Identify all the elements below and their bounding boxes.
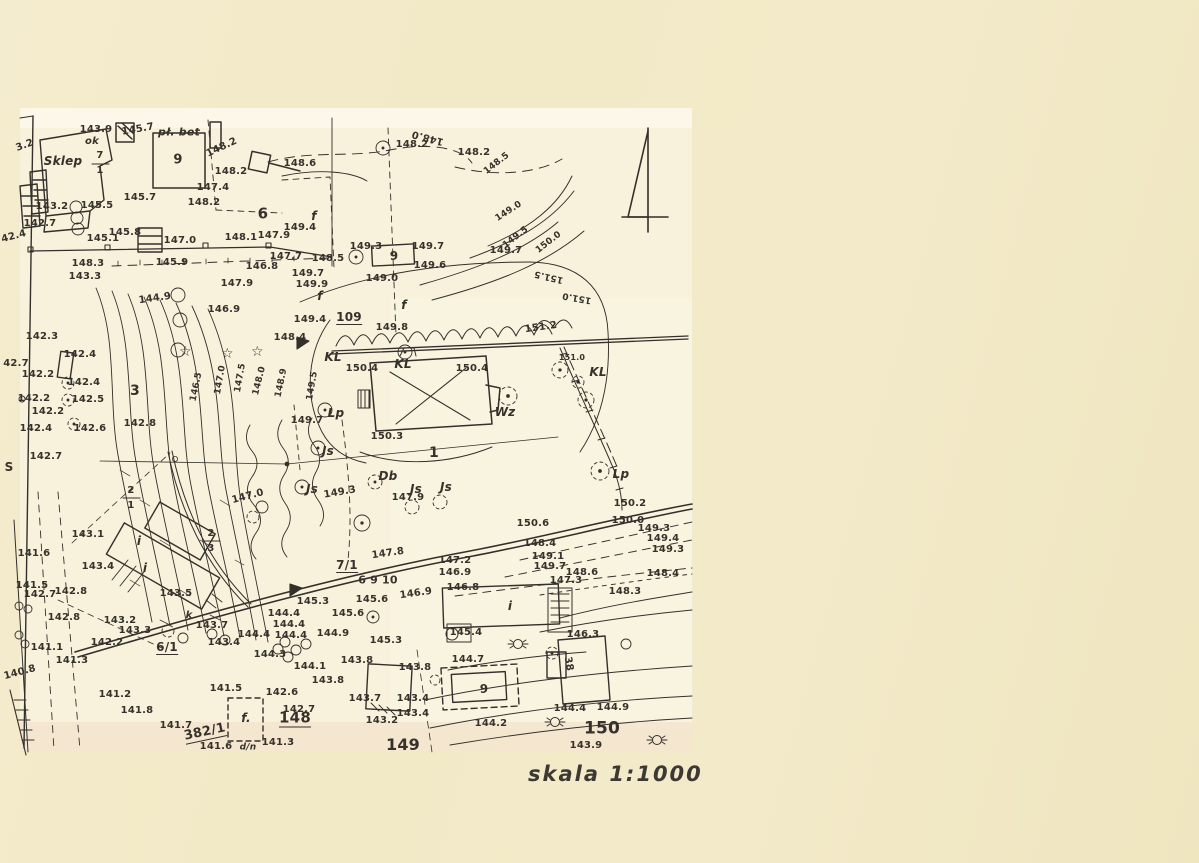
elevation-label: 149.6 — [414, 261, 447, 271]
elevation-label: 142.8 — [55, 587, 88, 597]
elevation-label: 142.8 — [124, 419, 157, 429]
elevation-label: 143.4 — [82, 562, 115, 572]
elevation-label: 149.7 — [412, 242, 445, 252]
elevation-label: 142.2 — [91, 638, 124, 648]
elevation-label: 142.4 — [20, 424, 53, 434]
elevation-label: 145.9 — [156, 258, 189, 268]
elevation-label: 146.9 — [208, 305, 241, 315]
elevation-label: 144.9 — [317, 629, 350, 639]
elevation-label: 149.7 — [490, 246, 523, 256]
abbrev-label: ok — [85, 137, 99, 147]
elevation-label: 144.4 — [238, 630, 271, 640]
elevation-label: 145.3 — [370, 636, 403, 646]
elevation-label: 149.8 — [376, 323, 409, 333]
svg-text:☆: ☆ — [179, 344, 192, 360]
elevation-label: 143.8 — [399, 663, 432, 673]
elevation-label: 142.3 — [26, 332, 59, 342]
elevation-label: 142.6 — [74, 424, 107, 434]
elevation-label: 143.9 — [80, 125, 113, 135]
svg-text:☆: ☆ — [251, 344, 264, 360]
elevation-label: 143.8 — [312, 676, 345, 686]
elevation-label: 143.3 — [119, 626, 152, 636]
elevation-label: 148.2 — [396, 140, 429, 150]
tree-species-label: Js — [410, 483, 422, 495]
parcel-label: 2 — [207, 529, 214, 539]
elevation-label: 149.7 — [534, 562, 567, 572]
svg-text:☆: ☆ — [221, 346, 234, 362]
elevation-label: 142.6 — [266, 688, 299, 698]
tree-species-label: Db — [379, 470, 398, 482]
elevation-label: 144.4 — [275, 631, 308, 641]
elevation-label: 148.3 — [609, 587, 642, 597]
parcel-label: 1 — [127, 501, 134, 511]
elevation-label: 142.4 — [68, 378, 101, 388]
elevation-label: 147.2 — [439, 556, 472, 566]
map-scale-label: skala 1:1000 — [528, 762, 703, 786]
elevation-label: 149.7 — [292, 269, 325, 279]
elevation-label: 143.1 — [72, 530, 105, 540]
elevation-label: 149.3 — [350, 242, 383, 252]
elevation-label: 146.3 — [567, 630, 600, 640]
elevation-label: 145.4 — [450, 628, 483, 638]
elevation-label: 148.4 — [274, 333, 307, 343]
parcel-label: 3 — [207, 544, 214, 554]
elevation-label: 142.7 — [24, 590, 57, 600]
elevation-label: 142.2 — [32, 407, 65, 417]
elevation-label: 141.3 — [262, 738, 295, 748]
elevation-label: 147.3 — [550, 576, 583, 586]
building-label: 38 — [562, 656, 574, 672]
elevation-label: 149.3 — [652, 545, 685, 555]
elevation-label: 141.3 — [56, 656, 89, 666]
tree-species-label: Lp — [328, 407, 345, 419]
elevation-label: 150.4 — [346, 364, 379, 374]
elevation-label: 141.1 — [31, 643, 64, 653]
elevation-label: 142.4 — [64, 350, 97, 360]
building-label: i — [143, 562, 147, 574]
elevation-label: 150.4 — [456, 364, 489, 374]
elevation-label: 146.8 — [246, 262, 279, 272]
building-label: 1 — [429, 446, 439, 460]
north-arrow-icon — [622, 128, 668, 232]
elevation-label: 149.7 — [291, 416, 324, 426]
elevation-label: 147.9 — [221, 279, 254, 289]
elevation-label: 150.2 — [614, 499, 647, 509]
elevation-label: 149.4 — [647, 534, 680, 544]
elevation-label: 148.2 — [458, 148, 491, 158]
tree-species-label: f — [311, 210, 316, 222]
elevation-label: 151.0 — [559, 354, 585, 362]
tree-species-label: f — [401, 299, 406, 311]
elevation-label: 148.5 — [312, 254, 345, 264]
elevation-label: 144.1 — [294, 662, 327, 672]
elevation-label: 145.6 — [356, 595, 389, 605]
elevation-label: 142.2 — [18, 394, 51, 404]
elevation-label: 142.8 — [48, 613, 81, 623]
boundary-letter-label: S — [5, 461, 14, 473]
tree-species-label: f. — [241, 712, 251, 724]
elevation-label: 141.5 — [16, 581, 49, 591]
elevation-label: 149.4 — [294, 315, 327, 325]
parcel-label: 3 — [130, 384, 140, 398]
elevation-label: 149.4 — [284, 223, 317, 233]
elevation-label: 150 — [584, 721, 620, 738]
elevation-label: 149.9 — [296, 280, 329, 290]
elevation-label: 148 — [279, 711, 311, 728]
elevation-label: 148.6 — [284, 159, 317, 169]
building-label: i — [508, 600, 512, 612]
elevation-label: 142.5 — [72, 395, 105, 405]
elevation-label: 143.2 — [36, 202, 69, 212]
parcel-label: 7 — [96, 151, 103, 161]
elevation-label: 141.8 — [121, 706, 154, 716]
tree-species-label: KL — [394, 358, 411, 370]
elevation-label: 146.8 — [447, 583, 480, 593]
elevation-label: 145.8 — [109, 228, 142, 238]
building-1 — [358, 348, 500, 431]
elevation-label: 148.1 — [225, 233, 258, 243]
elevation-label: 148.2 — [188, 198, 221, 208]
elevation-label: 143.4 — [397, 694, 430, 704]
building-name-label: Sklep — [44, 155, 82, 167]
scanned-map-page: { "colors":{"paper":"#f1e8c6","sheet":"#… — [0, 0, 1199, 863]
elevation-label: 144.4 — [273, 620, 306, 630]
elevation-label: 149.0 — [366, 274, 399, 284]
parcel-label: 6 — [258, 207, 269, 222]
elevation-label: 143.9 — [570, 741, 603, 751]
parcel-label: 7/1 — [336, 559, 358, 573]
elevation-label: 144.3 — [254, 650, 287, 660]
elevation-label: 143.7 — [196, 621, 229, 631]
tree-species-label: Wz — [495, 406, 516, 418]
parcel-label: 2 — [127, 486, 134, 496]
elevation-label: 148.4 — [524, 539, 557, 549]
building-label: 9 — [480, 683, 489, 695]
elevation-label: 141.6 — [200, 742, 233, 752]
tree-species-label: f — [317, 290, 322, 302]
elevation-label: 150.3 — [371, 432, 404, 442]
elevation-label: 147.0 — [164, 236, 197, 246]
elevation-label: 148.4 — [647, 569, 680, 579]
elevation-label: 42.7 — [3, 359, 28, 369]
elevation-label: 148.3 — [72, 259, 105, 269]
elevation-label: 143.4 — [397, 709, 430, 719]
elevation-label: 145.3 — [297, 597, 330, 607]
elevation-label: 143.7 — [349, 694, 382, 704]
elevation-label: 144.2 — [475, 719, 508, 729]
elevation-label: 145.7 — [124, 193, 157, 203]
abbrev-label: d/n — [240, 744, 257, 753]
elevation-label: 148.2 — [215, 167, 248, 177]
elevation-label: 141.5 — [210, 684, 243, 694]
tree-species-label: KL — [324, 351, 341, 363]
elevation-label: 141.2 — [99, 690, 132, 700]
parcel-label: 1 — [96, 166, 103, 176]
elevation-label: 149 — [386, 737, 420, 753]
elevation-label: 145.5 — [81, 201, 114, 211]
elevation-label: 143.5 — [160, 589, 193, 599]
tree-species-label: Js — [306, 483, 318, 495]
building-label: 9 — [390, 250, 399, 262]
elevation-label: 144.4 — [554, 704, 587, 714]
elevation-label: 142.7 — [24, 219, 57, 229]
building-label: i — [137, 535, 141, 547]
elevation-label: 145.6 — [332, 609, 365, 619]
star-symbols: ☆☆☆ — [179, 344, 264, 362]
tree-species-label: Js — [440, 481, 452, 493]
tree-species-label: Js — [322, 445, 334, 457]
tree-species-label: Lp — [613, 468, 630, 480]
elevation-label: 147.4 — [197, 183, 230, 193]
parcel-label: 6/1 — [156, 641, 178, 655]
building-label: 9 — [173, 154, 182, 167]
elevation-label: 143.8 — [341, 656, 374, 666]
elevation-label: 143.2 — [366, 716, 399, 726]
elevation-label: 150.6 — [517, 519, 550, 529]
elevation-label: 144.4 — [268, 609, 301, 619]
elevation-label: 144.9 — [597, 703, 630, 713]
abbrev-label: k — [186, 611, 193, 621]
tree-species-label: KL — [589, 366, 606, 378]
surface-label: pł. bet — [158, 127, 200, 138]
elevation-label: 144.7 — [452, 655, 485, 665]
tree-number-label: 6 9 10 — [358, 575, 397, 586]
elevation-label: 142.2 — [22, 370, 55, 380]
elevation-label: 141.6 — [18, 549, 51, 559]
fraction-bars — [92, 164, 220, 541]
elevation-label: 143.3 — [69, 272, 102, 282]
elevation-label: 143.4 — [208, 638, 241, 648]
elevation-label: 142.7 — [30, 452, 63, 462]
parcel-label: 109 — [336, 311, 362, 325]
elevation-label: 146.9 — [439, 568, 472, 578]
